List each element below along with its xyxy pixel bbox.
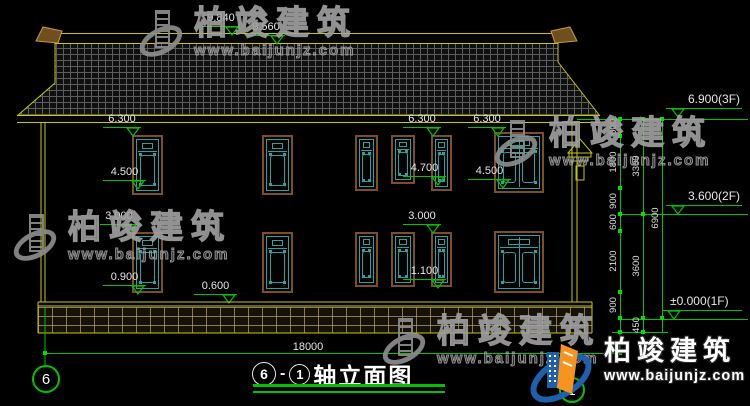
dimension-chain-value: 1800 xyxy=(609,140,619,184)
window-corner-dot xyxy=(368,179,371,182)
watermark-name: 柏竣建筑 xyxy=(549,116,713,150)
watermark-logo-icon xyxy=(138,6,188,62)
axis-bubble-6: 6 xyxy=(32,365,60,393)
dimension-chain-line xyxy=(662,119,663,332)
window-corner-dot xyxy=(362,249,365,252)
window-top-ornament xyxy=(142,143,154,150)
window-corner-dot xyxy=(534,181,537,184)
level-value: 6.900(3F) xyxy=(688,93,740,106)
level-marker-triangle xyxy=(670,108,686,118)
window-corner-dot xyxy=(442,249,445,252)
watermark-building-glyph xyxy=(398,318,413,356)
window-transom xyxy=(268,151,287,152)
window-top-ornament xyxy=(142,240,154,247)
title-underline-thin xyxy=(253,391,445,393)
dimension-tick xyxy=(641,117,645,121)
elevation-value: 4.500 xyxy=(94,166,155,178)
elevation-marker-triangle xyxy=(430,176,446,186)
level-line xyxy=(618,214,748,215)
elevation-value: 3.000 xyxy=(91,210,147,222)
dimension-tick xyxy=(660,117,664,121)
window-corner-dot xyxy=(534,150,537,153)
window-corner-dot xyxy=(269,250,272,253)
elevation-value: 6.300 xyxy=(459,113,515,125)
width-dimension-value: 18000 xyxy=(278,341,338,353)
window-corner-dot xyxy=(362,275,365,278)
dimension-chain-value: 6900 xyxy=(651,196,661,240)
window-transom xyxy=(138,151,157,152)
window-top-ornament xyxy=(399,142,407,147)
elevation-marker-triangle xyxy=(490,127,506,137)
window-corner-dot xyxy=(398,249,401,252)
window-corner-dot xyxy=(368,152,371,155)
window-corner-dot xyxy=(283,153,286,156)
window-corner-dot xyxy=(139,250,142,253)
elevation-marker-triangle xyxy=(425,224,441,234)
window-pane xyxy=(522,252,535,284)
elevation-marker-triangle xyxy=(125,127,141,137)
elevation-drawing: 9.8409.5606.3006.3006.3004.5004.7004.500… xyxy=(0,0,750,406)
brand-logo-name: 柏竣建筑 xyxy=(604,336,745,366)
title-underline-thick xyxy=(253,384,445,387)
window-corner-dot xyxy=(405,150,408,153)
window-corner-dot xyxy=(362,179,365,182)
title-axis-circle-1: 1 xyxy=(289,364,310,385)
elevation-marker-triangle xyxy=(430,279,446,289)
watermark-logo-icon xyxy=(12,210,62,266)
window-pane xyxy=(522,152,535,183)
window-corner-dot xyxy=(153,153,156,156)
window-pane xyxy=(270,155,285,186)
watermark-swoosh xyxy=(135,19,188,64)
window-pane xyxy=(362,251,371,278)
window-lattice xyxy=(498,235,540,289)
window-top-ornament xyxy=(438,142,444,148)
brand-logo-icon xyxy=(524,336,600,404)
elevation-value: 4.700 xyxy=(394,162,455,174)
dimension-chain-value: 600 xyxy=(609,200,619,244)
elevation-value: 6.300 xyxy=(94,113,150,125)
dimension-tick xyxy=(641,212,645,216)
title-dash: - xyxy=(280,365,285,383)
window-top-ornament xyxy=(438,239,444,245)
window-corner-dot xyxy=(362,152,365,155)
window xyxy=(355,232,378,287)
elevation-value: 1.100 xyxy=(394,265,455,277)
window-pane xyxy=(362,154,371,182)
elevation-value: 3.000 xyxy=(394,210,450,222)
watermark-building-glyph xyxy=(29,214,44,252)
window-corner-dot xyxy=(153,250,156,253)
window xyxy=(262,232,293,293)
dimension-chain-line xyxy=(643,119,644,332)
window-corner-dot xyxy=(269,183,272,186)
dimension-chain-value: 900 xyxy=(609,283,619,327)
window-corner-dot xyxy=(283,281,286,284)
window-corner-dot xyxy=(534,281,537,284)
window-corner-dot xyxy=(501,250,504,253)
window-corner-dot xyxy=(438,249,441,252)
window-corner-dot xyxy=(438,152,441,155)
window-corner-dot xyxy=(368,249,371,252)
window-top-ornament xyxy=(363,142,370,148)
window-transom xyxy=(361,150,372,151)
window-lattice xyxy=(359,236,374,283)
brand-logo: 柏竣建筑 www.baijunjz.com xyxy=(524,336,745,404)
elevation-value: 0.900 xyxy=(94,271,155,283)
window-corner-dot xyxy=(139,153,142,156)
level-value: 3.600(2F) xyxy=(688,190,740,203)
window-mullion xyxy=(519,237,520,287)
window-corner-dot xyxy=(283,183,286,186)
watermark-swoosh xyxy=(9,223,62,268)
window-corner-dot xyxy=(398,150,401,153)
window-corner-dot xyxy=(442,152,445,155)
elevation-value: 0.600 xyxy=(185,280,246,292)
window-lattice xyxy=(266,236,289,289)
level-value: ±0.000(1F) xyxy=(670,295,729,308)
dimension-chain-value: 3300 xyxy=(632,144,642,188)
window-corner-dot xyxy=(269,153,272,156)
window-pane xyxy=(503,252,516,284)
elevation-marker-triangle xyxy=(122,224,138,234)
window-corner-dot xyxy=(405,249,408,252)
elevation-marker-triangle xyxy=(130,180,146,190)
window xyxy=(494,231,544,293)
dimension-tick xyxy=(618,330,622,334)
window-transom xyxy=(268,248,287,249)
dimension-chain-value: 3600 xyxy=(632,244,642,288)
window-corner-dot xyxy=(153,183,156,186)
dimension-chain-value: 2100 xyxy=(609,239,619,283)
title-axis-circle-6: 6 xyxy=(252,362,276,386)
window-top-ornament xyxy=(272,240,284,247)
window-lattice xyxy=(359,139,374,187)
window-transom xyxy=(138,248,157,249)
window-mullion xyxy=(519,138,520,187)
window-corner-dot xyxy=(501,281,504,284)
dimension-tick xyxy=(660,316,664,320)
window xyxy=(132,232,163,293)
window-pane xyxy=(270,252,285,283)
window xyxy=(355,135,378,191)
elevation-marker-triangle xyxy=(425,127,441,137)
window-corner-dot xyxy=(501,150,504,153)
elevation-value: 9.560 xyxy=(238,21,294,33)
elevation-value: 4.500 xyxy=(459,165,520,177)
window-corner-dot xyxy=(283,250,286,253)
elevation-marker-triangle xyxy=(495,179,511,189)
window-corner-dot xyxy=(534,250,537,253)
window-corner-dot xyxy=(368,275,371,278)
dimension-chain-line xyxy=(620,119,621,332)
window xyxy=(262,135,293,195)
window-top-ornament xyxy=(272,143,284,150)
brand-logo-url: www.baijunjz.com xyxy=(604,368,745,384)
elevation-marker-triangle xyxy=(221,294,237,304)
window-corner-dot xyxy=(269,281,272,284)
window-transom xyxy=(437,150,446,151)
elevation-marker-triangle xyxy=(130,285,146,295)
watermark-building-glyph xyxy=(155,10,170,48)
elevation-marker-triangle xyxy=(269,35,285,45)
elevation-value: 6.300 xyxy=(394,113,450,125)
watermark-url: www.baijunjz.com xyxy=(194,43,358,59)
window-top-ornament xyxy=(363,239,370,245)
window-top-ornament xyxy=(399,239,407,245)
window-lattice xyxy=(266,139,289,191)
